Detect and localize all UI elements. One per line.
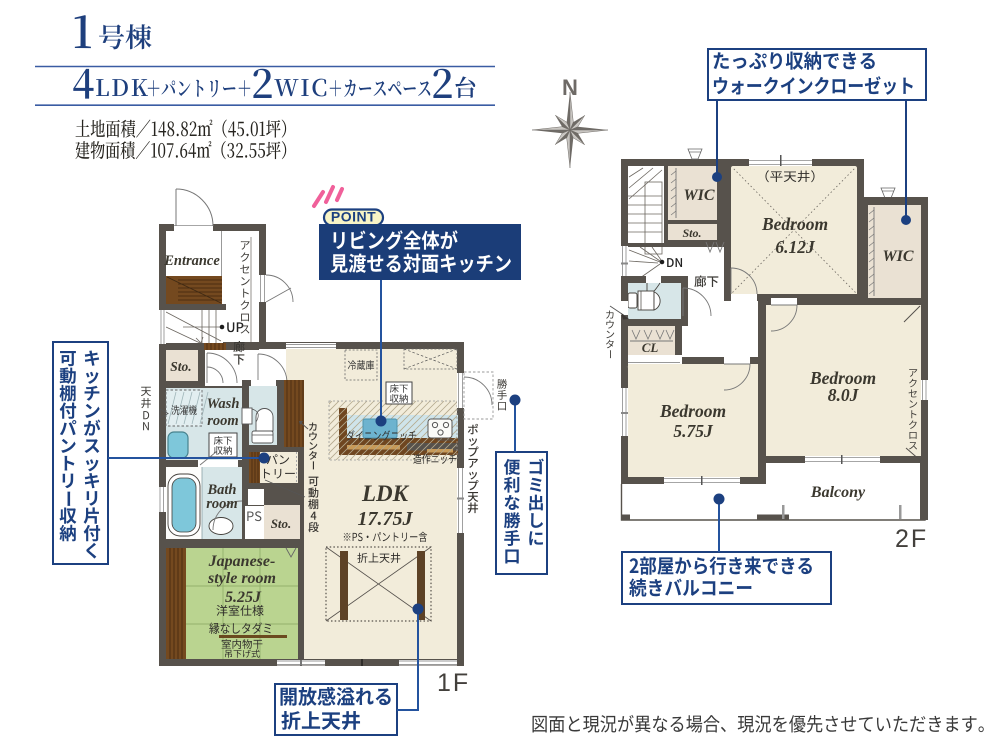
svg-text:style room: style room bbox=[207, 570, 276, 587]
svg-text:Balcony: Balcony bbox=[810, 484, 866, 501]
svg-text:Bedroom: Bedroom bbox=[761, 214, 828, 234]
svg-text:6.12J: 6.12J bbox=[775, 237, 816, 257]
svg-text:2F: 2F bbox=[895, 525, 928, 553]
svg-text:5.25J: 5.25J bbox=[225, 589, 262, 606]
svg-text:CL: CL bbox=[642, 340, 659, 355]
svg-text:room: room bbox=[206, 496, 237, 512]
svg-text:N: N bbox=[562, 75, 578, 100]
svg-text:Wash: Wash bbox=[207, 396, 240, 412]
svg-text:LDK: LDK bbox=[361, 481, 410, 506]
svg-text:WIC: WIC bbox=[683, 187, 714, 204]
svg-text:room: room bbox=[207, 413, 238, 429]
svg-text:Sto.: Sto. bbox=[170, 359, 191, 374]
svg-text:Japanese-: Japanese- bbox=[208, 553, 276, 570]
svg-text:Entrance: Entrance bbox=[163, 253, 220, 269]
svg-text:17.75J: 17.75J bbox=[358, 508, 414, 530]
svg-text:Bedroom: Bedroom bbox=[659, 401, 726, 421]
svg-text:1F: 1F bbox=[437, 669, 470, 697]
svg-text:POINT: POINT bbox=[331, 209, 376, 225]
svg-text:Sto.: Sto. bbox=[682, 226, 701, 240]
svg-text:5.75J: 5.75J bbox=[673, 421, 714, 441]
svg-text:8.0J: 8.0J bbox=[828, 385, 860, 405]
svg-text:Sto.: Sto. bbox=[271, 516, 292, 531]
svg-text:WIC: WIC bbox=[882, 248, 913, 265]
